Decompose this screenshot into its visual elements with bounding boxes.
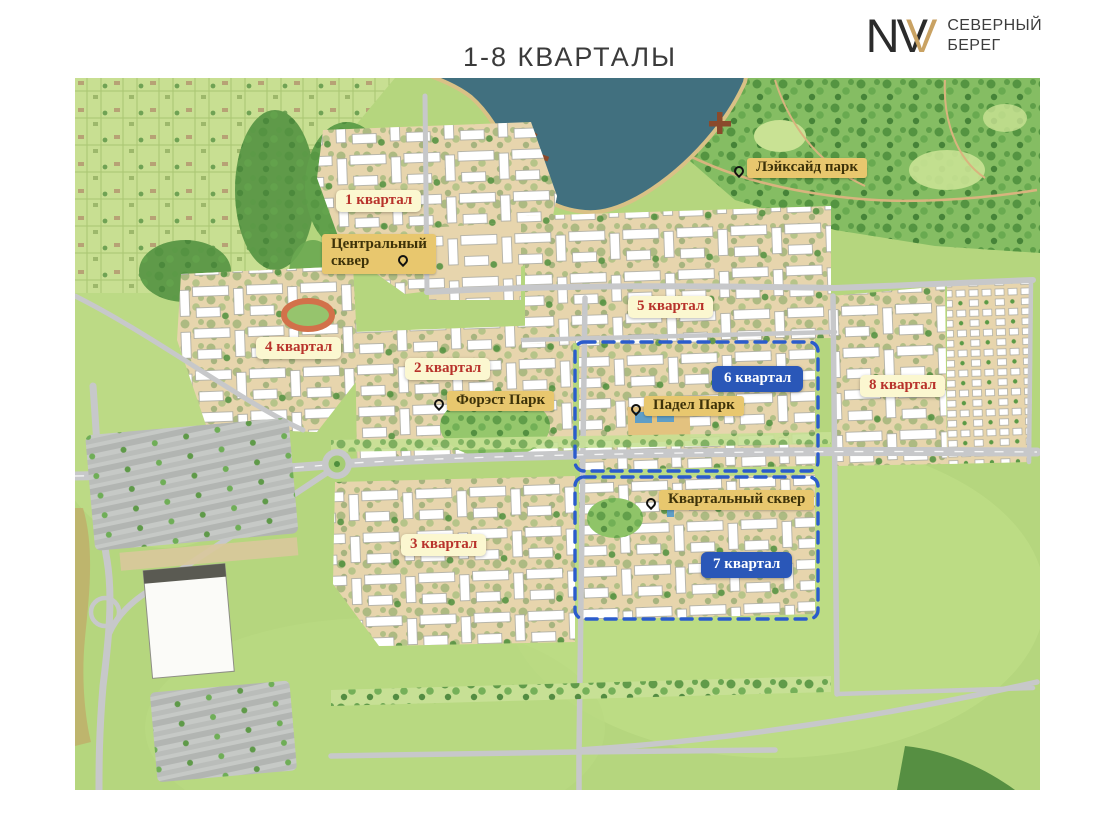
label-block-square-text: Квартальный сквер — [668, 491, 805, 507]
quarter-5-area — [525, 206, 831, 344]
logo-name: СЕВЕРНЫЙ БЕРЕГ — [947, 16, 1042, 54]
masterplan-page: 1-8 КВАРТАЛЫ NV V СЕВЕРНЫЙ БЕРЕГ — [0, 0, 1100, 819]
map-pin-icon — [396, 253, 410, 267]
label-central-square: Центральный сквер — [322, 234, 436, 274]
quarter-3-area — [333, 476, 575, 646]
map-illustration — [75, 78, 1040, 790]
label-quarter-7: 7 квартал — [701, 552, 792, 578]
label-quarter-2: 2 квартал — [405, 358, 490, 380]
label-forest-park-text: Форэст Парк — [456, 392, 545, 408]
logo-monogram-accent-v: V — [906, 12, 937, 59]
label-quarter-5: 5 квартал — [628, 296, 713, 318]
label-padel-park-text: Падел Парк — [653, 397, 735, 413]
parking-lot-south — [150, 680, 297, 782]
logo-name-line1: СЕВЕРНЫЙ — [947, 17, 1042, 34]
label-quarter-6: 6 квартал — [712, 366, 803, 392]
label-central-square-text: Центральный сквер — [331, 236, 427, 269]
logo-name-line2: БЕРЕГ — [947, 37, 1000, 54]
brand-logo: NV V СЕВЕРНЫЙ БЕРЕГ — [866, 12, 1042, 59]
label-quarter-4: 4 квартал — [256, 337, 341, 359]
masterplan-map: 1 квартал 2 квартал 3 квартал 4 квартал … — [75, 78, 1040, 790]
roundabout — [322, 449, 352, 479]
label-quarter-8: 8 квартал — [860, 375, 945, 397]
label-lakeside-park: Лэйксайд парк — [747, 158, 867, 178]
running-track — [284, 301, 332, 329]
label-forest-park: Форэст Парк — [447, 391, 554, 411]
parking-lot-north — [85, 418, 298, 551]
label-lakeside-park-text: Лэйксайд парк — [756, 159, 858, 175]
quarter-8-area — [831, 278, 1033, 466]
label-block-square: Квартальный сквер — [659, 490, 814, 510]
label-padel-park: Падел Парк — [644, 396, 744, 416]
label-quarter-3: 3 квартал — [401, 534, 486, 556]
label-quarter-1: 1 квартал — [336, 190, 421, 212]
